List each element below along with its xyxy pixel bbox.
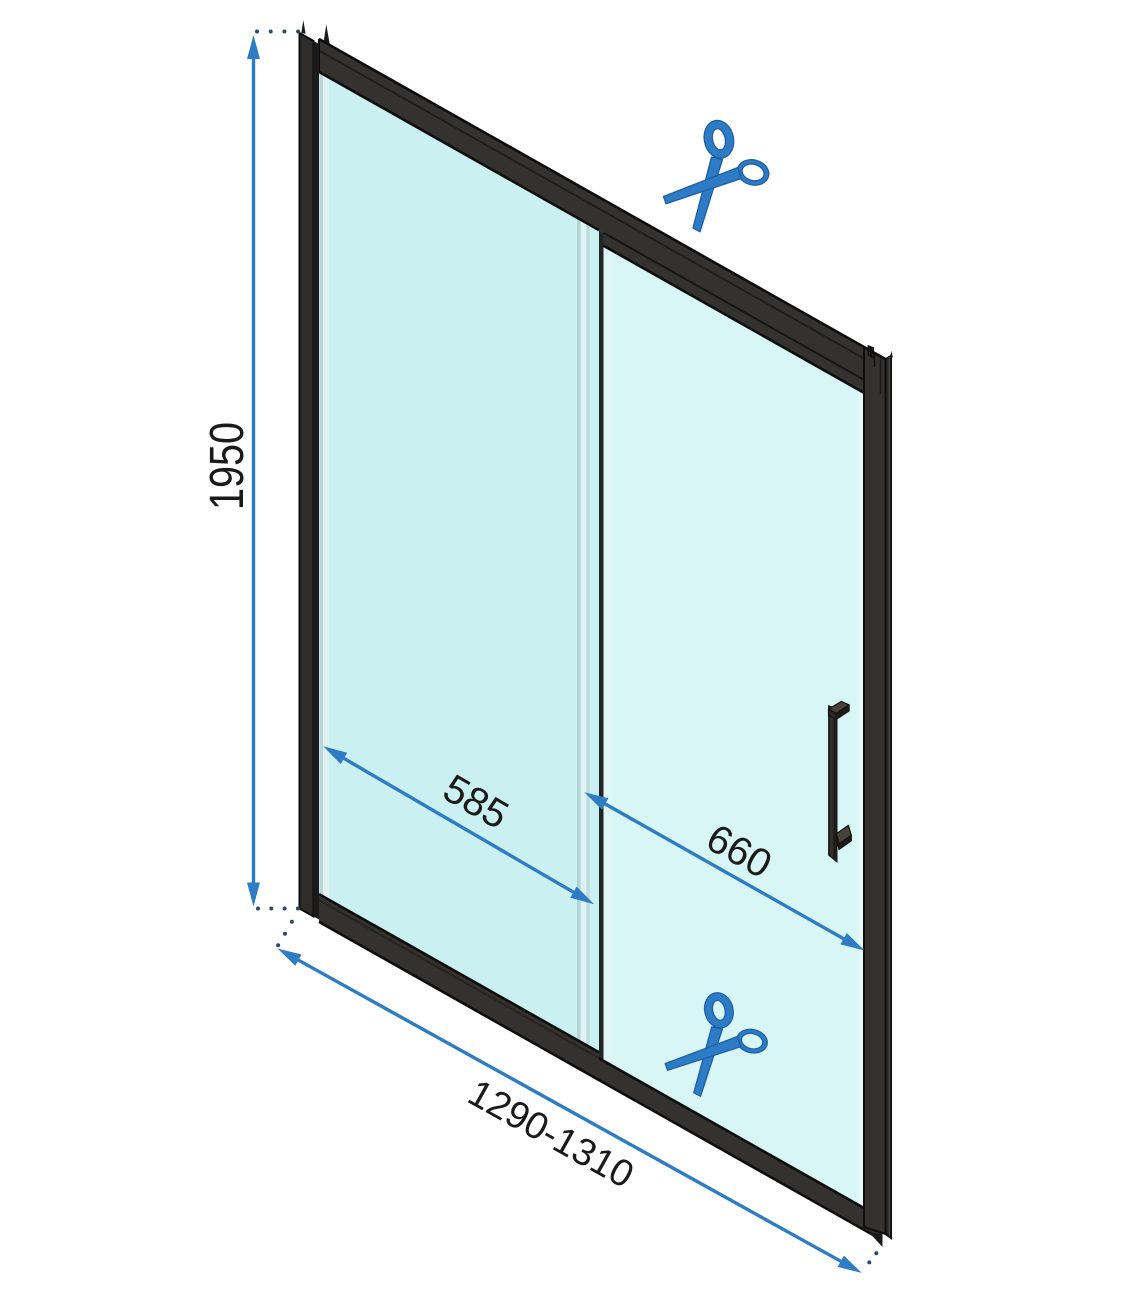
svg-text:1950: 1950: [201, 422, 254, 510]
